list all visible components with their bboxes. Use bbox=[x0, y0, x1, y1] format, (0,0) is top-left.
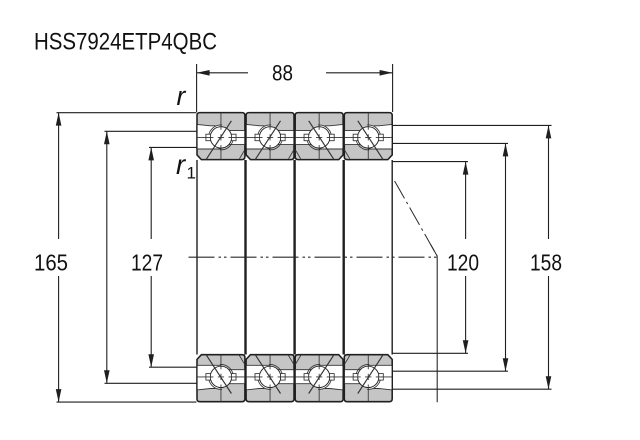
svg-text:1: 1 bbox=[187, 164, 196, 183]
svg-text:158: 158 bbox=[530, 250, 562, 276]
svg-text:88: 88 bbox=[272, 61, 293, 86]
svg-text:r: r bbox=[177, 81, 187, 111]
svg-text:HSS7924ETP4QBC: HSS7924ETP4QBC bbox=[34, 28, 217, 55]
svg-text:127: 127 bbox=[131, 250, 163, 276]
svg-text:120: 120 bbox=[447, 250, 479, 276]
svg-text:165: 165 bbox=[34, 250, 68, 276]
